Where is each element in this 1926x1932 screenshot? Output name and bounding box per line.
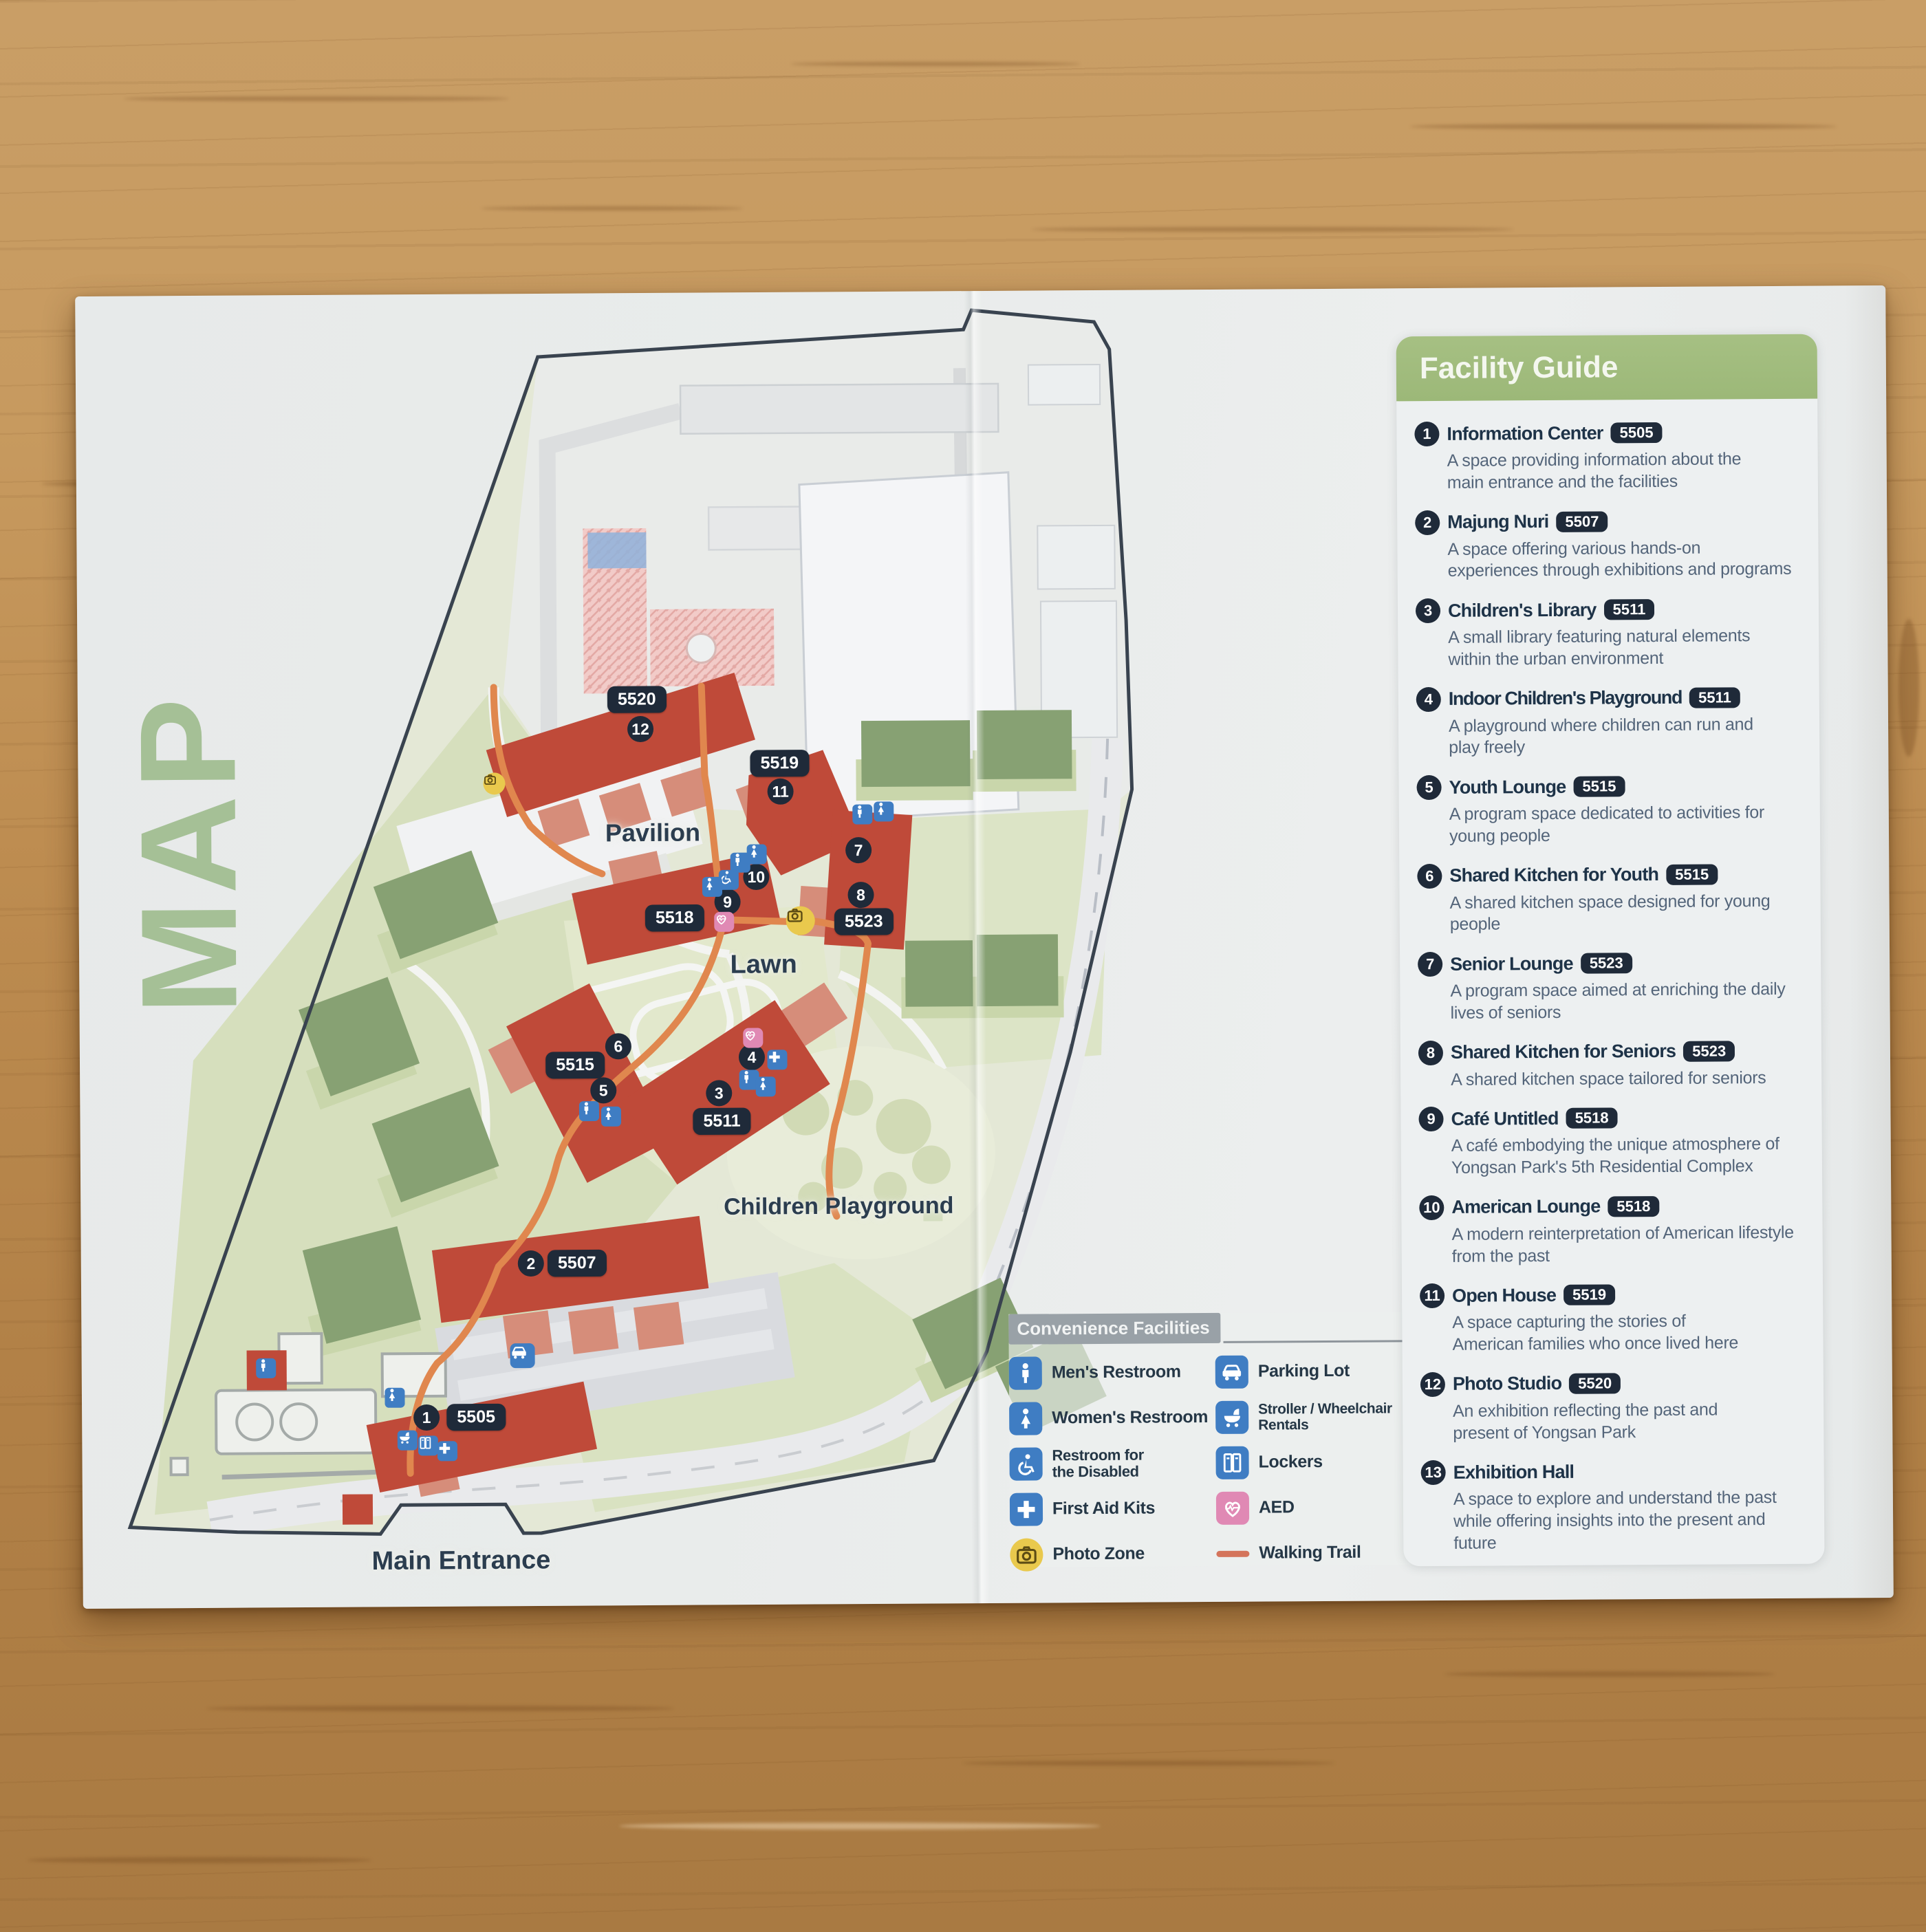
photo-zone-icon <box>483 772 505 794</box>
marker-11-open-house: 11 <box>767 779 793 805</box>
womens-restroom-icon <box>601 1107 621 1127</box>
facility-name: Senior Lounge <box>1450 953 1573 975</box>
building-label-5518: 5518 <box>645 904 704 932</box>
building-code-badge: 5523 <box>1581 953 1632 973</box>
womens-restroom-icon <box>702 877 722 897</box>
facility-name: Exhibition Hall <box>1453 1462 1575 1484</box>
parking-icon <box>1215 1356 1248 1389</box>
wood-grain <box>481 206 743 210</box>
legend-item: First Aid Kits <box>1010 1490 1216 1528</box>
photo-zone-icon <box>786 907 815 935</box>
facility-name: Photo Studio <box>1453 1373 1562 1395</box>
item-number: 3 <box>1416 598 1440 623</box>
facility-item: 5Youth Lounge5515 A program space dedica… <box>1416 773 1808 848</box>
womens-restroom-icon <box>1009 1402 1042 1435</box>
wood-grain <box>963 1761 1334 1766</box>
legend-rule <box>1224 1340 1412 1343</box>
first-aid-icon <box>1010 1493 1043 1526</box>
building-code-badge: 5515 <box>1666 864 1718 884</box>
facility-item: 7Senior Lounge5523 A program space aimed… <box>1418 950 1809 1025</box>
wood-grain <box>28 1857 371 1863</box>
marker-1-information-center: 1 <box>413 1404 440 1431</box>
area-label-lawn: Lawn <box>730 950 797 980</box>
mens-restroom-icon <box>579 1101 599 1121</box>
facility-description: A playground where children can run and … <box>1449 713 1807 759</box>
facility-guide-title: Facility Guide <box>1396 334 1818 402</box>
area-label-main-entrance: Main Entrance <box>371 1545 550 1576</box>
marker-7-senior-lounge: 7 <box>845 837 872 863</box>
item-number: 12 <box>1420 1372 1445 1397</box>
building-code-badge: 5519 <box>1563 1285 1615 1305</box>
marker-2-majung-nuri: 2 <box>518 1250 544 1277</box>
legend-right-column: Parking Lot Stroller / Wheelchair Rental… <box>1215 1353 1409 1572</box>
building-code-badge: 5511 <box>1689 687 1740 708</box>
parking-icon <box>510 1343 535 1368</box>
area-label-pavilion: Pavilion <box>605 818 700 848</box>
legend-left-column: Men's Restroom Women's Restroom Restroom… <box>1009 1354 1217 1573</box>
facility-description: A small library featuring natural elemen… <box>1448 625 1806 671</box>
facility-item: 3Children's Library5511 A small library … <box>1416 596 1807 671</box>
legend-item: Men's Restroom <box>1009 1354 1215 1391</box>
item-number: 7 <box>1418 952 1442 977</box>
facility-item: 8Shared Kitchen for Seniors5523 A shared… <box>1418 1038 1809 1091</box>
facility-name: Information Center <box>1447 422 1603 444</box>
brochure-page: MAP <box>75 285 1894 1609</box>
facility-description: A modern reinterpretation of American li… <box>1451 1222 1810 1268</box>
facility-name: Children's Library <box>1448 599 1597 621</box>
item-number: 9 <box>1418 1107 1443 1131</box>
legend-item: Parking Lot <box>1215 1353 1408 1390</box>
item-number: 4 <box>1416 686 1441 711</box>
facility-name: Indoor Children's Playground <box>1449 687 1682 710</box>
facility-name: Café Untitled <box>1451 1108 1558 1130</box>
building-code-badge: 5518 <box>1608 1196 1659 1217</box>
mens-restroom-icon <box>852 804 872 824</box>
facility-guide-panel: Facility Guide 1Information Center5505 A… <box>1396 334 1825 1567</box>
item-number: 2 <box>1415 510 1440 534</box>
facility-name: American Lounge <box>1451 1196 1600 1218</box>
facility-item: 13Exhibition Hall A space to explore and… <box>1421 1458 1813 1555</box>
building-code-badge: 5515 <box>1573 776 1625 796</box>
facility-description: A shared kitchen space tailored for seni… <box>1451 1067 1809 1091</box>
legend-item: Walking Trail <box>1216 1534 1409 1572</box>
wood-grain <box>1032 227 1513 232</box>
facility-name: Majung Nuri <box>1447 511 1548 533</box>
building-code-badge: 5511 <box>1604 599 1655 620</box>
building-label-5515: 5515 <box>545 1052 605 1079</box>
marker-5-youth-lounge: 5 <box>590 1077 616 1103</box>
facility-description: A program space aimed at enriching the d… <box>1450 979 1808 1025</box>
accessible-restroom-icon <box>1009 1447 1042 1480</box>
facility-description: A café embodying the unique atmosphere o… <box>1451 1133 1810 1180</box>
facility-description: A space capturing the stories of America… <box>1452 1310 1810 1356</box>
mens-restroom-icon <box>256 1358 276 1378</box>
legend-item: Photo Zone <box>1010 1536 1216 1573</box>
mens-restroom-icon <box>1009 1357 1042 1390</box>
building-code-badge: 5505 <box>1610 422 1662 443</box>
womens-restroom-icon <box>874 801 894 821</box>
aed-icon <box>743 1028 763 1048</box>
wood-grain <box>791 62 1080 66</box>
facility-description: A shared kitchen space designed for youn… <box>1450 890 1808 936</box>
marker-12-photo-studio: 12 <box>627 716 653 742</box>
item-number: 11 <box>1420 1283 1444 1308</box>
facility-item: 2Majung Nuri5507 A space offering variou… <box>1415 508 1806 583</box>
walking-trail-icon <box>1216 1537 1249 1570</box>
item-number: 8 <box>1418 1040 1443 1065</box>
lockers-icon <box>1215 1446 1248 1479</box>
legend-item: Women's Restroom <box>1009 1400 1215 1437</box>
item-number: 5 <box>1416 775 1441 800</box>
first-aid-icon <box>437 1441 457 1461</box>
building-label-5520: 5520 <box>607 686 667 713</box>
facility-name: Shared Kitchen for Seniors <box>1451 1041 1676 1063</box>
building-code-badge: 5518 <box>1566 1108 1618 1129</box>
facility-description: A space to explore and understand the pa… <box>1453 1487 1813 1554</box>
wood-grain <box>619 1823 1101 1830</box>
building-label-5505: 5505 <box>446 1404 506 1431</box>
facility-item: 4Indoor Children's Playground5511 A play… <box>1416 684 1808 759</box>
womens-restroom-icon <box>756 1076 776 1096</box>
facility-guide-list: 1Information Center5505 A space providin… <box>1396 399 1824 1555</box>
page-edge-shade <box>1844 285 1894 1598</box>
item-number: 13 <box>1421 1460 1446 1485</box>
facility-item: 11Open House5519 A space capturing the s… <box>1420 1281 1811 1356</box>
building-label-5507: 5507 <box>548 1250 607 1277</box>
wood-grain <box>1898 619 1919 757</box>
aed-icon <box>714 912 734 932</box>
legend-item: AED <box>1216 1489 1409 1526</box>
legend-title: Convenience Facilities <box>1008 1313 1221 1345</box>
legend-item: Lockers <box>1215 1444 1408 1481</box>
first-aid-icon <box>767 1050 787 1070</box>
legend-panel: Convenience Facilities Men's Restroom Wo… <box>1008 1312 1413 1567</box>
facility-item: 10American Lounge5518 A modern reinterpr… <box>1419 1193 1810 1268</box>
facility-description: A program space dedicated to activities … <box>1449 802 1808 848</box>
facility-name: Open House <box>1452 1285 1556 1307</box>
wood-grain <box>1410 124 1837 129</box>
wood-grain <box>1444 1671 1775 1677</box>
legend-item: Stroller / Wheelchair Rentals <box>1215 1398 1408 1435</box>
womens-restroom-icon <box>385 1388 404 1408</box>
building-label-5523: 5523 <box>834 908 894 935</box>
stroller-rental-icon <box>398 1431 418 1451</box>
aed-icon <box>1216 1492 1249 1525</box>
building-code-badge: 5520 <box>1569 1373 1621 1393</box>
facility-description: A space offering various hands-on experi… <box>1447 536 1806 583</box>
building-label-5511: 5511 <box>693 1108 750 1136</box>
marker-3-childrens-library: 3 <box>706 1080 732 1106</box>
wood-grain <box>206 1706 674 1711</box>
item-number: 1 <box>1414 422 1439 446</box>
wood-grain <box>124 96 509 101</box>
lockers-icon <box>418 1435 438 1455</box>
building-label-5519: 5519 <box>750 750 809 777</box>
area-label-children-playground: Children Playground <box>724 1193 954 1221</box>
building-code-badge: 5507 <box>1556 511 1608 532</box>
item-number: 10 <box>1419 1195 1444 1220</box>
item-number: 6 <box>1417 863 1442 888</box>
building-code-badge: 5523 <box>1683 1041 1735 1061</box>
facility-item: 12Photo Studio5520 An exhibition reflect… <box>1420 1369 1812 1444</box>
facility-name: Shared Kitchen for Youth <box>1449 864 1658 887</box>
facility-item: 6Shared Kitchen for Youth5515 A shared k… <box>1417 861 1808 936</box>
legend-item: Restroom for the Disabled <box>1009 1445 1215 1482</box>
facility-item: 9Café Untitled5518 A café embodying the … <box>1418 1105 1810 1180</box>
facility-name: Youth Lounge <box>1449 776 1566 798</box>
photo-zone-icon <box>1010 1538 1043 1571</box>
facility-description: A space providing information about the … <box>1447 448 1806 495</box>
facility-description: An exhibition reflecting the past and pr… <box>1453 1398 1811 1444</box>
marker-6-shared-kitchen-youth: 6 <box>605 1033 631 1059</box>
facility-item: 1Information Center5505 A space providin… <box>1414 420 1806 495</box>
stroller-rental-icon <box>1215 1401 1248 1434</box>
marker-4-indoor-playground: 4 <box>739 1044 765 1070</box>
marker-8-shared-kitchen-seniors: 8 <box>847 882 874 908</box>
